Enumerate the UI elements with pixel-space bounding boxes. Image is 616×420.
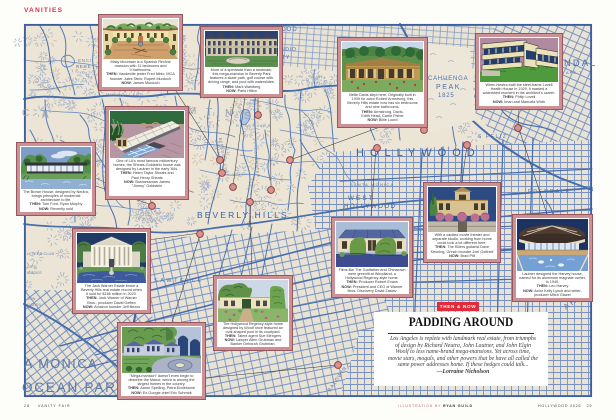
svg-text:NDAL: NDAL [564,58,597,69]
svg-text:A: A [42,110,49,121]
svg-text:ENCI: ENCI [78,58,92,63]
svg-text:A MONICA: A MONICA [24,357,98,371]
svg-text:MULHOLLAND: MULHOLLAND [106,93,144,97]
svg-text:BEVERLY HILLS: BEVERLY HILLS [197,210,289,220]
svg-text:EDENDALE: EDENDALE [528,189,571,195]
svg-text:OCEAN PARK: OCEAN PARK [22,380,128,395]
svg-text:APE T: APE T [566,70,583,75]
svg-text:S FELIZ: S FELIZ [478,134,508,140]
svg-text:C: C [22,108,29,119]
svg-text:1825: 1825 [438,93,455,99]
svg-text:CAHUENGA: CAHUENGA [428,76,468,82]
svg-text:TY: TY [282,55,290,61]
svg-text:CIFIC: CIFIC [27,264,38,269]
svg-text:TON: TON [27,296,35,301]
svg-text:ISADES: ISADES [27,270,42,275]
svg-text:N: N [225,108,232,119]
svg-text:OOD: OOD [281,27,298,33]
svg-text:PEAK: PEAK [436,84,461,91]
svg-text:HOLLYWOOD: HOLLYWOOD [344,203,396,210]
svg-text:RESE: RESE [76,64,91,69]
svg-text:LFTERS CLUB: LFTERS CLUB [27,251,54,256]
svg-text:T: T [206,107,212,118]
svg-text:SAWTELLE: SAWTELLE [154,278,204,284]
svg-text:UDIO: UDIO [281,47,297,53]
svg-text:S: S [244,111,251,122]
svg-text:WEST: WEST [348,195,375,202]
svg-text:SANTA MONICA: SANTA MONICA [350,182,394,187]
svg-text:GADES: GADES [27,302,41,307]
